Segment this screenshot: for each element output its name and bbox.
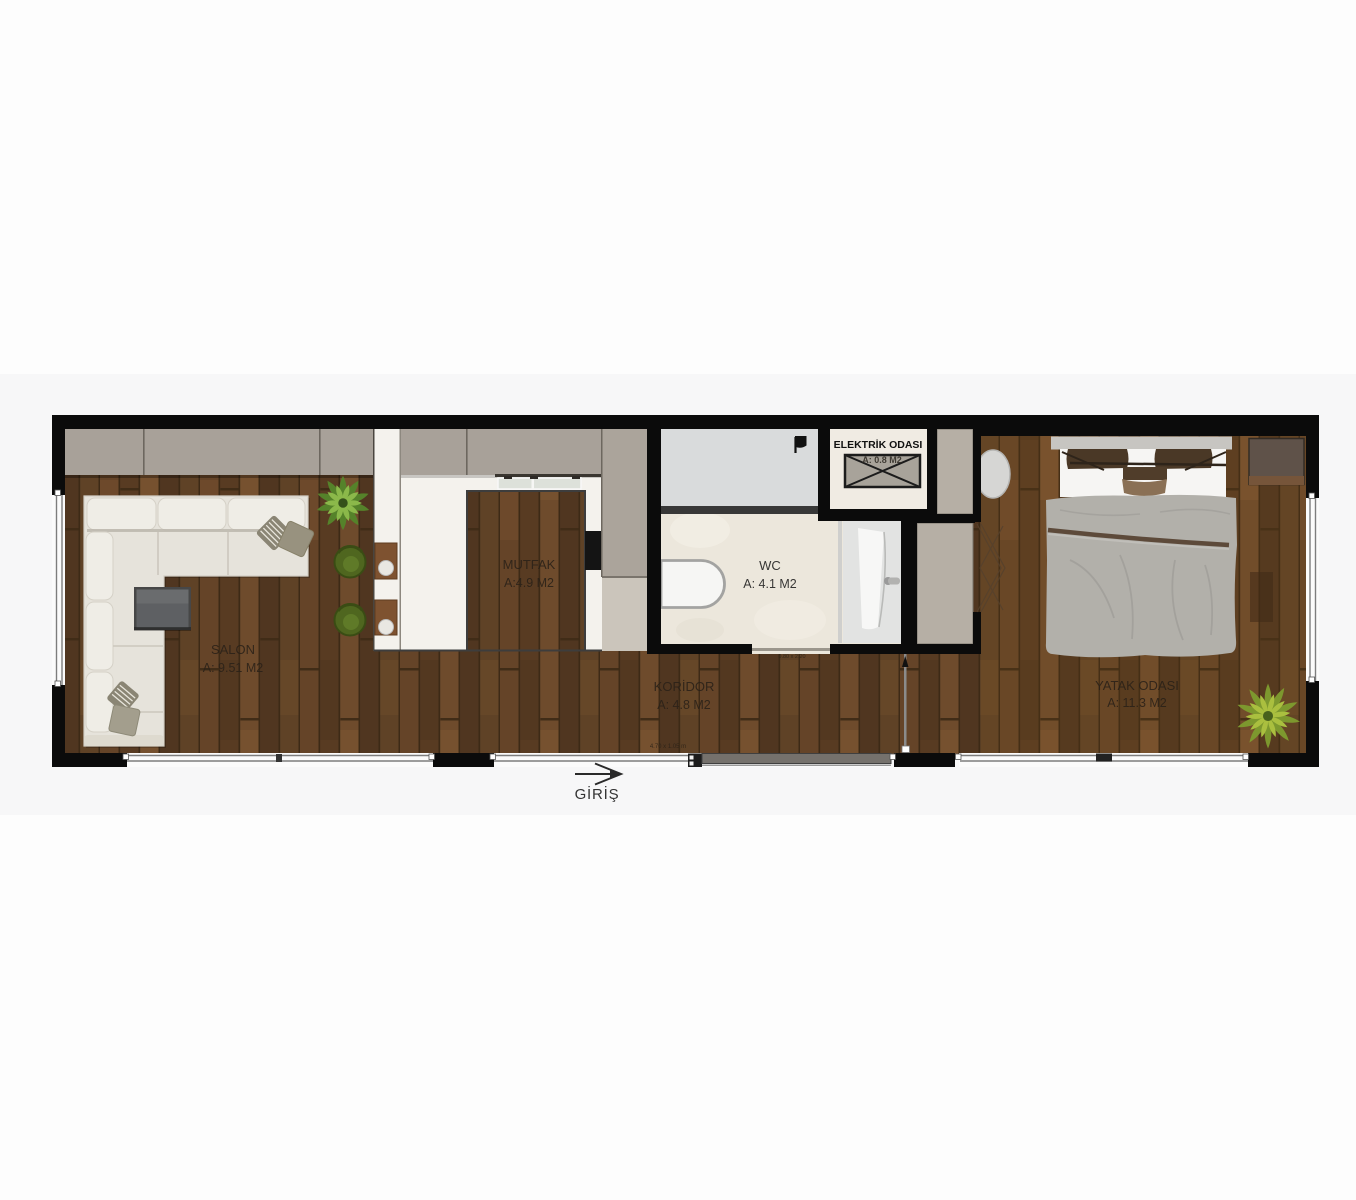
- svg-text:A: 11.3 M2: A: 11.3 M2: [1107, 696, 1167, 710]
- svg-text:A: 4.8 M2: A: 4.8 M2: [657, 698, 711, 712]
- svg-text:YATAK ODASI: YATAK ODASI: [1095, 678, 1179, 693]
- svg-text:A: 9.51 M2: A: 9.51 M2: [203, 661, 263, 675]
- svg-text:ELEKTRİK ODASI: ELEKTRİK ODASI: [834, 438, 923, 451]
- svg-text:WC: WC: [759, 558, 781, 573]
- svg-text:A: 0.8 M2: A: 0.8 M2: [862, 455, 902, 465]
- svg-text:MUTFAK: MUTFAK: [503, 557, 556, 572]
- svg-text:A:4.9 M2: A:4.9 M2: [504, 576, 554, 590]
- svg-text:A: 4.1 M2: A: 4.1 M2: [743, 577, 797, 591]
- svg-text:SALON: SALON: [211, 642, 255, 657]
- svg-text:4.70 x 1.05 m: 4.70 x 1.05 m: [650, 744, 686, 750]
- svg-text:0.80 x 2.20: 0.80 x 2.20: [778, 654, 805, 660]
- svg-text:GİRİŞ: GİRİŞ: [575, 785, 620, 803]
- svg-text:KORİDOR: KORİDOR: [654, 679, 715, 694]
